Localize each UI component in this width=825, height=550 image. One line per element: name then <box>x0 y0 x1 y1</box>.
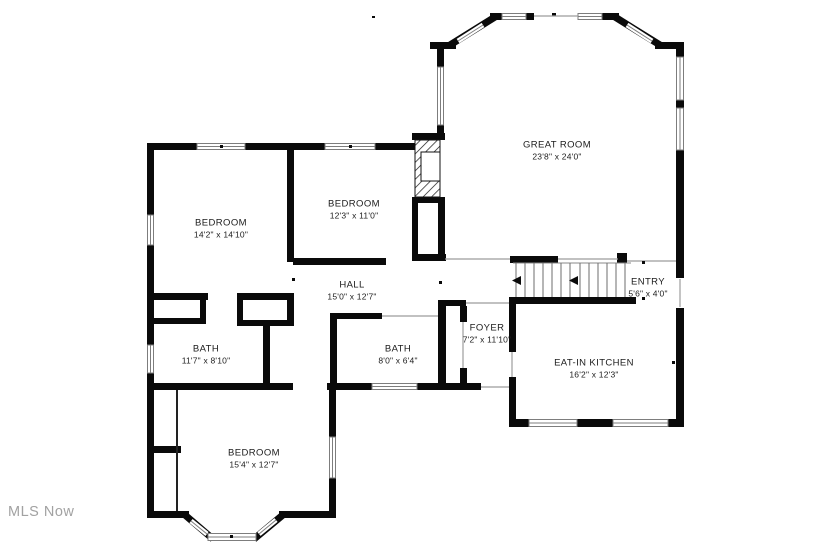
staircase <box>512 263 631 297</box>
room-label-kitchen: EAT-IN KITCHEN 16'2" x 12'3" <box>554 357 634 380</box>
room-label-bedroom-bottom: BEDROOM 15'4" x 12'7" <box>228 447 280 470</box>
walls <box>147 13 684 518</box>
room-label-bedroom-middle: BEDROOM 12'3" x 11'0" <box>328 198 380 221</box>
room-label-bath-main: BATH 11'7" x 8'10" <box>182 343 231 366</box>
room-label-bedroom-left: BEDROOM 14'2" x 14'10" <box>194 217 248 240</box>
floor-plan: GREAT ROOM 23'8" x 24'0" BEDROOM 14'2" x… <box>0 0 825 550</box>
room-label-foyer: FOYER 7'2" x 11'10" <box>463 322 512 345</box>
room-label-hall: HALL 15'0" x 12'7" <box>327 279 376 302</box>
floor-plan-drawing <box>0 0 825 550</box>
room-label-great-room: GREAT ROOM 23'8" x 24'0" <box>523 139 591 162</box>
room-label-bath-second: BATH 8'0" x 6'4" <box>378 343 417 366</box>
watermark: MLS Now <box>8 504 74 520</box>
stair-direction-arrows <box>512 276 578 285</box>
fireplace <box>415 140 440 197</box>
room-label-entry: ENTRY 5'6" x 4'0" <box>628 276 667 299</box>
